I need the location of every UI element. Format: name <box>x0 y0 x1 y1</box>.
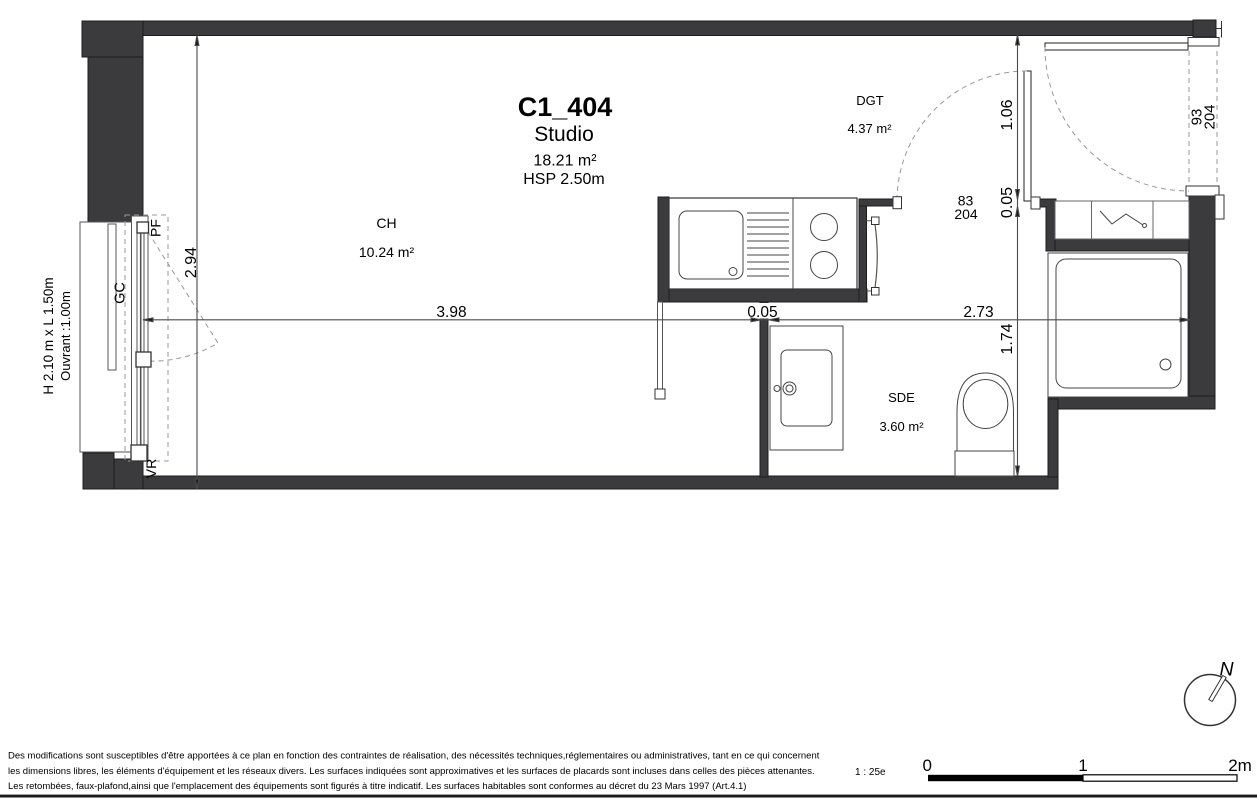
svg-text:1 : 25e: 1 : 25e <box>855 767 886 778</box>
svg-text:1.06: 1.06 <box>999 99 1016 130</box>
svg-text:PF: PF <box>147 219 163 237</box>
svg-text:0.05: 0.05 <box>747 304 777 321</box>
svg-text:0.05: 0.05 <box>999 187 1016 218</box>
svg-text:CH: CH <box>376 215 396 231</box>
svg-text:10.24 m²: 10.24 m² <box>359 244 415 260</box>
svg-text:4.37 m²: 4.37 m² <box>847 121 892 136</box>
svg-text:Studio: Studio <box>534 123 594 146</box>
svg-text:1: 1 <box>1078 756 1087 775</box>
svg-text:18.21 m²: 18.21 m² <box>533 153 597 170</box>
svg-text:2.73: 2.73 <box>963 304 993 321</box>
svg-text:H 2.10 m x L 1.50m: H 2.10 m x L 1.50m <box>41 277 56 394</box>
svg-text:2m: 2m <box>1228 756 1252 775</box>
svg-text:3.98: 3.98 <box>436 304 466 321</box>
svg-text:1.74: 1.74 <box>999 323 1016 354</box>
svg-text:C1_404: C1_404 <box>518 92 613 122</box>
svg-text:204: 204 <box>954 206 978 222</box>
svg-text:les dimensions libres, les élé: les dimensions libres, les éléments d'éq… <box>8 766 815 777</box>
svg-text:DGT: DGT <box>856 93 884 108</box>
svg-text:Les retombées, faux-plafond,ai: Les retombées, faux-plafond,ainsi que l'… <box>8 781 746 792</box>
svg-text:VR: VR <box>143 459 159 478</box>
svg-text:2.94: 2.94 <box>183 247 200 278</box>
svg-text:Des modifications sont suscept: Des modifications sont susceptibles d'êt… <box>8 751 820 762</box>
svg-text:Ouvrant :1.00m: Ouvrant :1.00m <box>58 291 73 381</box>
svg-text:204: 204 <box>1202 104 1219 129</box>
svg-text:3.60 m²: 3.60 m² <box>879 419 924 434</box>
svg-text:N: N <box>1219 659 1234 681</box>
svg-text:SDE: SDE <box>888 390 915 405</box>
svg-text:HSP 2.50m: HSP 2.50m <box>523 171 605 188</box>
svg-text:0: 0 <box>923 756 932 775</box>
svg-text:GC: GC <box>113 282 129 304</box>
